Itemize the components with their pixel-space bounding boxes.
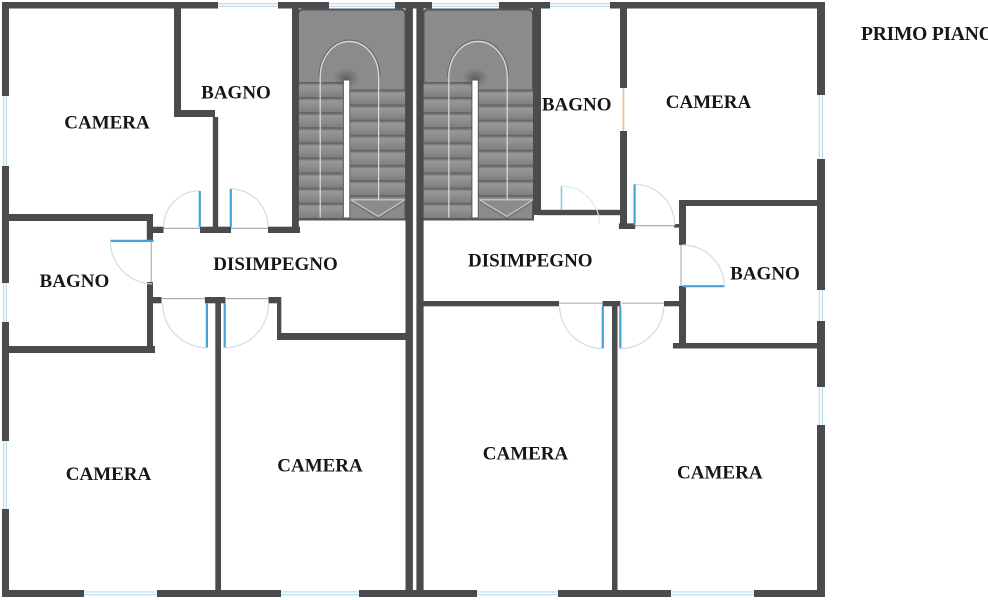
svg-text:CAMERA: CAMERA [64,113,150,134]
svg-text:PRIMO PIANO: PRIMO PIANO [861,24,988,45]
svg-text:BAGNO: BAGNO [40,271,110,292]
svg-text:CAMERA: CAMERA [277,456,363,477]
svg-text:CAMERA: CAMERA [66,464,152,485]
svg-text:CAMERA: CAMERA [677,463,763,484]
svg-text:BAGNO: BAGNO [201,83,271,104]
svg-text:CAMERA: CAMERA [666,92,752,113]
svg-text:DISIMPEGNO: DISIMPEGNO [213,254,338,275]
svg-text:DISIMPEGNO: DISIMPEGNO [468,251,593,272]
svg-text:BAGNO: BAGNO [730,264,800,285]
svg-text:CAMERA: CAMERA [483,444,569,465]
svg-text:BAGNO: BAGNO [542,95,612,116]
